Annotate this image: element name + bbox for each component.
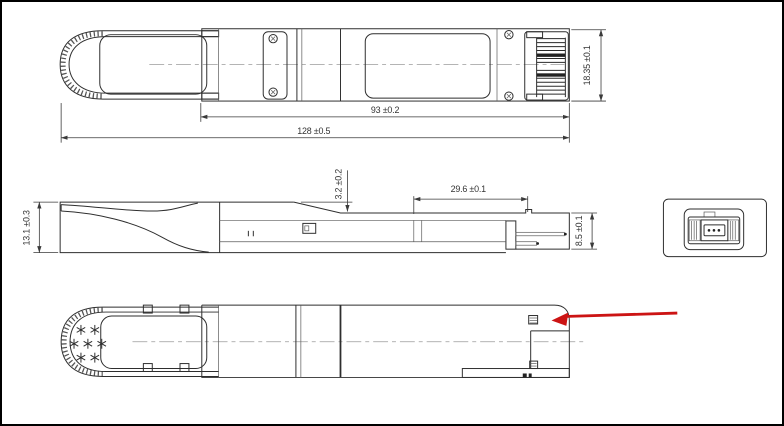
dim-overall-length-label: 128 ±0.5 [297,126,330,136]
dimension-body-length: 93 ±0.2 [201,103,570,143]
drawing-frame: 93 ±0.2 128 ±0.5 18.35 ±0.1 [0,0,784,426]
pull-tab-grip [101,316,207,369]
dim-module-width-label: 18.35 ±0.1 [582,45,592,85]
edge-connector-fingers [525,32,569,100]
top-view-pull-tab [60,31,218,99]
top-view: 93 ±0.2 128 ±0.5 18.35 ±0.1 [60,29,606,143]
end-view-key-notch [704,212,715,217]
dim-nose-height-label: 8.5 ±0.1 [574,215,584,246]
top-view-body [202,29,570,101]
bottom-view-seams [219,305,341,377]
bottom-ledge [462,369,569,378]
top-view-seams [219,29,497,101]
arrowhead [551,313,568,326]
pin1-marker [529,316,538,324]
side-view-pin-lower [516,242,537,245]
end-view-shell [663,199,766,256]
dim-handle-step-label: 3.2 ±0.2 [333,169,343,200]
dimension-module-width: 18.35 ±0.1 [571,30,606,101]
dim-nose-length-label: 29.6 ±0.1 [451,184,487,194]
bottom-view-right-features [462,316,569,378]
bottom-view [61,305,586,377]
dim-module-height-label: 13.1 ±0.3 [21,210,31,246]
dimension-overall-length: 128 ±0.5 [61,103,569,143]
dimension-module-height: 13.1 ±0.3 [21,202,58,253]
red-callout-arrow [551,313,677,326]
side-view-details [220,202,506,253]
dim-body-length-label: 93 ±0.2 [371,105,400,115]
end-view-receptacle [688,217,740,244]
dimension-nose-length: 29.6 ±0.1 [414,184,528,214]
technical-drawing: 93 ±0.2 128 ±0.5 18.35 ±0.1 [2,2,782,424]
side-view-handle-profile [61,203,209,252]
label-area [365,34,490,98]
bottom-view-pull-tab [61,305,219,376]
side-view: 13.1 ±0.3 3.2 ±0.2 29.6 ±0.1 8.5 ±0.1 [21,169,597,253]
side-view-outline [60,202,569,253]
side-view-pin-upper [516,232,565,235]
bottom-view-body [202,305,570,377]
end-view [663,199,766,256]
dimension-nose-height: 8.5 ±0.1 [571,213,597,249]
side-view-boot-block [506,221,516,249]
